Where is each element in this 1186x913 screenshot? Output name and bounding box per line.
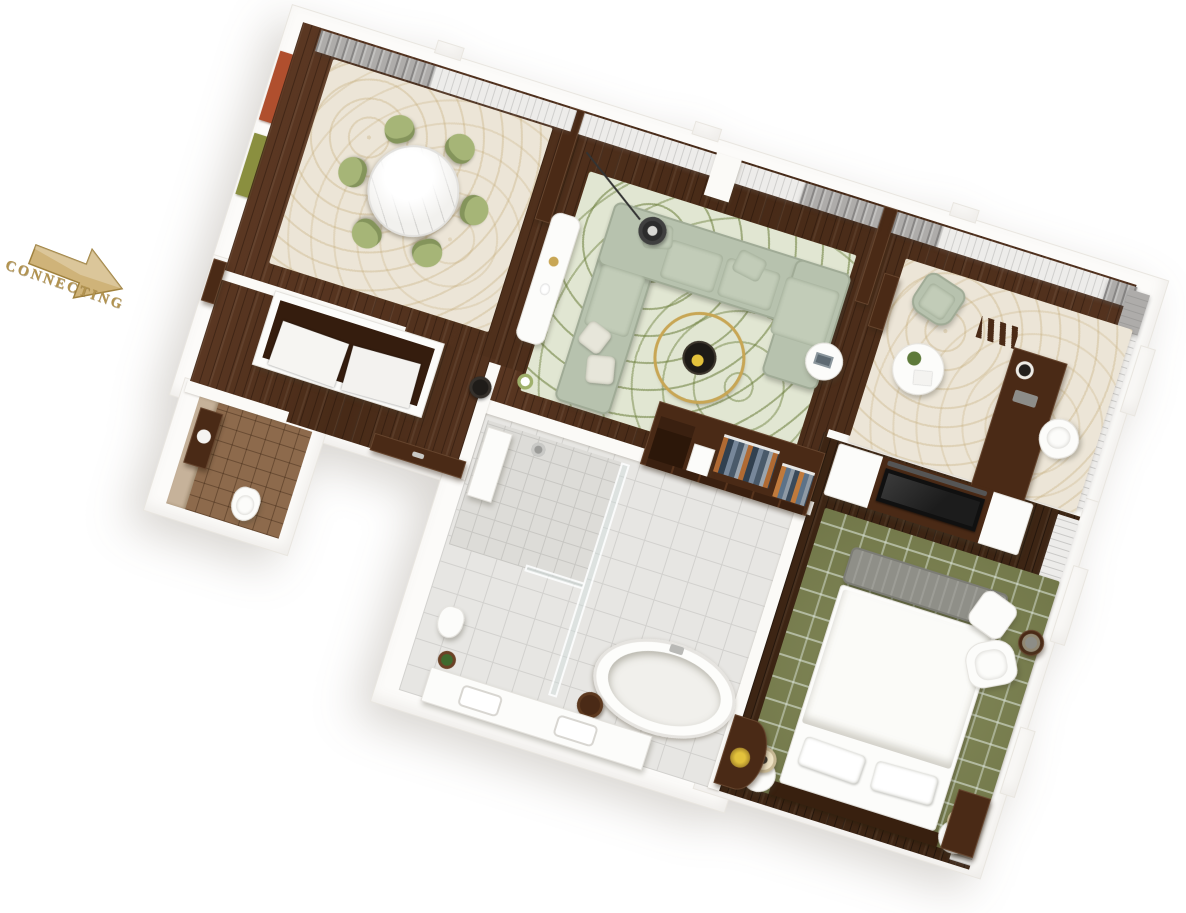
powder-toilet [227, 484, 264, 525]
door-handle [412, 451, 425, 459]
bathroom-toilet [433, 603, 467, 641]
floor-plan-canvas: CONNECTING [0, 0, 1186, 898]
vanity-sink [552, 714, 599, 748]
bed-pillow [796, 735, 866, 785]
bed-pillow [869, 760, 939, 806]
throw-pillow [585, 354, 616, 385]
plant [905, 350, 923, 368]
magazine [913, 370, 932, 386]
gold-tray [728, 745, 753, 770]
powder-basin [195, 428, 213, 446]
white-pillar [704, 153, 742, 203]
gold-flower-decor [547, 255, 560, 268]
vanity-sink [457, 684, 504, 718]
wall-plate [1012, 389, 1038, 408]
laptop [813, 352, 834, 369]
desk-lamp [1013, 359, 1036, 382]
suite-floor-plan [94, 4, 1170, 910]
white-vase [538, 282, 551, 296]
vanity-plant [436, 649, 459, 672]
table-lamp [1020, 632, 1043, 655]
